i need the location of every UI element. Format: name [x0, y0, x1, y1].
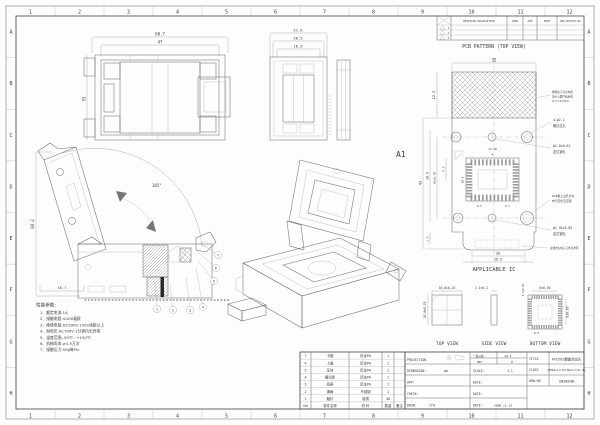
zone-row-label: A: [9, 30, 12, 36]
dim-hatch-height: 12.5: [432, 91, 436, 100]
part-no: 5: [304, 368, 306, 372]
dim-footprint-height: 10.8: [461, 176, 465, 183]
zone-row-label: A: [587, 30, 590, 36]
drwno-label: DRW.NO: [529, 379, 541, 383]
performance-title: 性能参数:: [36, 302, 56, 309]
zone-col-label: 10: [468, 414, 474, 420]
zone-col-label: 8: [372, 414, 375, 420]
dim-ic-top-w: 10.8±0.25: [439, 286, 456, 290]
zone-row-label: B: [9, 81, 12, 87]
zone-row-label: H: [587, 391, 590, 397]
check-label: CHECK:: [407, 392, 419, 396]
dimension-label: DIMENSION:: [407, 369, 426, 373]
dim-notch-outer: 26.5: [494, 258, 502, 262]
balloon-number: 1: [156, 307, 158, 311]
zone-row-label: B: [587, 81, 590, 87]
date-label-1: DATE:: [473, 381, 483, 385]
part-no: 2: [304, 390, 306, 394]
dim-notch-inner: 20: [496, 252, 500, 256]
zone-col-label: 6: [274, 414, 277, 420]
part-material: 铍铜: [362, 396, 369, 401]
part-name: 底座: [327, 382, 334, 387]
title-value: FP2502翻盖测试头: [552, 357, 582, 362]
tolerance-value: ±0.1: [505, 354, 512, 358]
part-material: 尼龙PA: [360, 367, 372, 372]
dim-front-height: 53: [82, 96, 87, 101]
part-no: 3: [304, 383, 306, 387]
performance-line: 6、机械寿命:≥1.5万次: [40, 341, 80, 346]
performance-line: 2、接触电阻:≤100毫欧: [40, 316, 81, 321]
part-qty: 1: [387, 376, 389, 380]
part-name: 上盖: [327, 360, 334, 365]
zone-col-label: 7: [323, 414, 326, 420]
zone-col-label: 4: [176, 414, 179, 420]
part-material: 尼龙PA: [360, 382, 372, 387]
zone-row-label: D: [587, 184, 590, 190]
zone-row-label: H: [9, 391, 12, 397]
revision-header: CHKD: [512, 19, 519, 23]
part-no: 4: [304, 376, 306, 380]
dim-section-height: 98.2: [30, 219, 35, 229]
parts-header: 备注: [396, 403, 403, 408]
parts-header: 零件名称: [323, 403, 337, 408]
class-value: CQFN48-0.8-STO-BGA(0.5X11.7B): [547, 369, 585, 372]
note-locating2-dim: φ1.95+0.05: [553, 226, 572, 230]
dim-ic-thickness: 2.1±0.2: [475, 286, 488, 290]
dimension-value: mm: [444, 369, 448, 373]
part-qty: 1: [387, 361, 389, 365]
dim-ic-bottom-w: 6±0.05: [539, 286, 550, 290]
part-material: 不锈钢: [360, 389, 371, 394]
class-label: CLASS: [529, 368, 539, 372]
note-screw-dim: 4-φ2.2: [553, 118, 565, 122]
balloon-number: 3: [189, 308, 191, 312]
dim-pad-pitch: 0.5: [477, 204, 482, 208]
zone-col-label: 8: [372, 10, 375, 16]
zone-col-label: 5: [225, 414, 228, 420]
part-name: 摆动架: [325, 375, 336, 380]
note-keepout-3: 0<T<0.5mm: [552, 99, 569, 103]
zone-col-label: 12: [566, 414, 572, 420]
scale-label: SCALE:: [473, 369, 485, 373]
zone-col-label: 10: [468, 10, 474, 16]
pcb-pattern-title: PCB PATTERN (TOP VIEW): [462, 44, 526, 50]
note-keepout-2: 电子元器件和走线: [552, 95, 573, 99]
rev-label: REV: [477, 360, 482, 364]
part-qty: 1: [387, 368, 389, 372]
part-qty: 48: [386, 397, 390, 401]
zone-row-label: E: [9, 236, 12, 242]
zone-col-label: 9: [421, 414, 424, 420]
dim-ic-bottom-h: 6±0.05: [566, 306, 570, 317]
performance-line: 7、接触压力:50g每Pin: [40, 347, 80, 352]
zone-col-label: 5: [225, 10, 228, 16]
applicable-ic-label: APPLICABLE IC: [472, 267, 515, 273]
dim-section-offset: 16.7: [57, 285, 66, 290]
revision-header: DATE: [544, 19, 551, 23]
part-material: 尼龙PA: [360, 360, 372, 365]
dim-hole-span: 30±0.02: [433, 171, 437, 184]
dim-front-outer-width: 60.7: [155, 32, 165, 37]
zone-row-label: F: [9, 288, 12, 294]
dim-open-angle: 105°: [152, 183, 162, 188]
revision-header: APP: [528, 19, 533, 23]
zone-col-label: 11: [517, 10, 523, 16]
zone-col-label: 4: [176, 10, 179, 16]
drwno-value: SN28D48: [559, 380, 574, 384]
zone-row-label: F: [587, 288, 590, 294]
zone-col-label: 1: [29, 10, 32, 16]
dim-ic-pad-width: 0.3±0.05: [521, 283, 525, 296]
dim-front-inner-width: 47: [158, 40, 163, 45]
ic-top-view-label: TOP VIEW: [436, 341, 458, 347]
zone-col-label: 1: [29, 414, 32, 420]
dim-pcb-height: 43: [419, 181, 423, 185]
title-label: TITLE: [529, 357, 539, 361]
balloon-number: 4: [202, 305, 204, 309]
note-screw-text: 螺丝过孔: [553, 123, 567, 128]
part-material: 尼龙PA: [360, 353, 372, 358]
dim-ic-top-h: 10.8±0.25: [423, 301, 427, 318]
note-locating1-dim: φ2.0±0.02: [553, 144, 570, 148]
pin-a1-label: A1: [396, 150, 406, 159]
balloon-number: 7: [217, 253, 219, 257]
drawing-sheet: 112233445566778899101011111212AABBCCDDEE…: [0, 0, 600, 425]
zone-col-label: 9: [421, 10, 424, 16]
balloon-number: 6: [215, 266, 217, 270]
zone-col-label: 2: [78, 414, 81, 420]
part-no: 1: [304, 397, 306, 401]
dim-top-offset: 5.5: [442, 166, 446, 172]
part-no: 6: [304, 361, 306, 365]
zone-col-label: 6: [274, 10, 277, 16]
projection-label: PROJECTION: [407, 358, 426, 362]
zone-col-label: 3: [127, 10, 130, 16]
zone-col-label: 12: [566, 10, 572, 16]
ic-bottom-view-label: BOTTOM VIEW: [530, 341, 561, 347]
part-qty: 1: [387, 383, 389, 387]
zone-row-label: E: [587, 236, 590, 242]
zone-row-label: D: [9, 184, 12, 190]
note-via-2: 布于定位孔范围: [552, 199, 572, 203]
dim-side-w2: 20.5: [293, 36, 302, 41]
zone-row-label: C: [587, 133, 590, 139]
performance-line: 4、耐电压:AC700V 1分钟内无异常: [40, 329, 101, 334]
performance-line: 5、温度范围:-50℃~+150℃: [40, 335, 91, 340]
dim-ic-pad-pitch: 0.5: [534, 331, 539, 335]
zone-col-label: 3: [127, 414, 130, 420]
app-label: APP:: [407, 381, 415, 385]
note-forbidden-zone: 虚线内为电子元件禁布区: [550, 246, 579, 250]
dim-pad-width: 0.3: [505, 204, 510, 208]
note-locating2-text: 定位销孔: [553, 231, 567, 236]
part-name: 触针: [327, 396, 334, 401]
date-value: 2008.11.12: [494, 404, 512, 408]
parts-header: 材 料: [362, 403, 370, 408]
dim-hole-span-v: 30.9: [426, 172, 430, 180]
part-name: 弹簧: [327, 389, 334, 394]
zone-col-label: 7: [323, 10, 326, 16]
tolerance-label: 一般公差: [473, 354, 484, 358]
contact-pin-section: [161, 277, 165, 297]
parts-header: 数量: [385, 403, 392, 408]
dim-side-w1: 21.6: [293, 28, 303, 33]
part-qty: 1: [387, 390, 389, 394]
note-locating1-text: 定位销孔: [553, 149, 567, 154]
note-keepout-1: 网纹处下方可布置: [552, 90, 573, 94]
part-material: 尼龙PA: [360, 375, 372, 380]
drgn-value: CYQ: [429, 404, 435, 408]
part-qty: 1: [387, 354, 389, 358]
date-label-2: DATE:: [473, 392, 483, 396]
performance-line: 1、额定电流:1A: [40, 310, 68, 315]
note-via-1: PCB板上过孔允许: [552, 194, 575, 198]
zone-col-label: 2: [78, 10, 81, 16]
zone-row-label: G: [9, 339, 12, 345]
scale-value: 1:1: [507, 369, 513, 373]
revision-header: REV.NOTICE.NO: [560, 19, 581, 23]
part-name: 卡圈: [327, 353, 334, 358]
zone-row-label: C: [9, 133, 12, 139]
dim-pcb-width: 32: [492, 58, 497, 63]
parts-header: No: [303, 404, 308, 408]
dim-footprint-width: 13.18: [488, 147, 497, 151]
balloon-number: 2: [172, 308, 174, 312]
balloon-number: 5: [213, 279, 215, 283]
drgn-label: DRGN:: [407, 404, 417, 408]
rev-value: A: [511, 360, 513, 364]
part-no: 7: [304, 354, 306, 358]
part-name: 压块: [327, 367, 334, 372]
revision-header: REVISION DESCRIPTION: [463, 19, 495, 23]
dim-side-w3: 16.5: [293, 44, 302, 49]
zone-row-label: G: [587, 339, 590, 345]
zone-col-label: 11: [517, 414, 523, 420]
date-label-3: DATE:: [473, 404, 483, 408]
performance-line: 3、绝缘电阻:DC500V 1000兆欧以上: [40, 322, 104, 327]
ic-side-view-label: SIDE VIEW: [482, 341, 507, 347]
dim-bottom-offset: 1.5: [426, 236, 430, 242]
